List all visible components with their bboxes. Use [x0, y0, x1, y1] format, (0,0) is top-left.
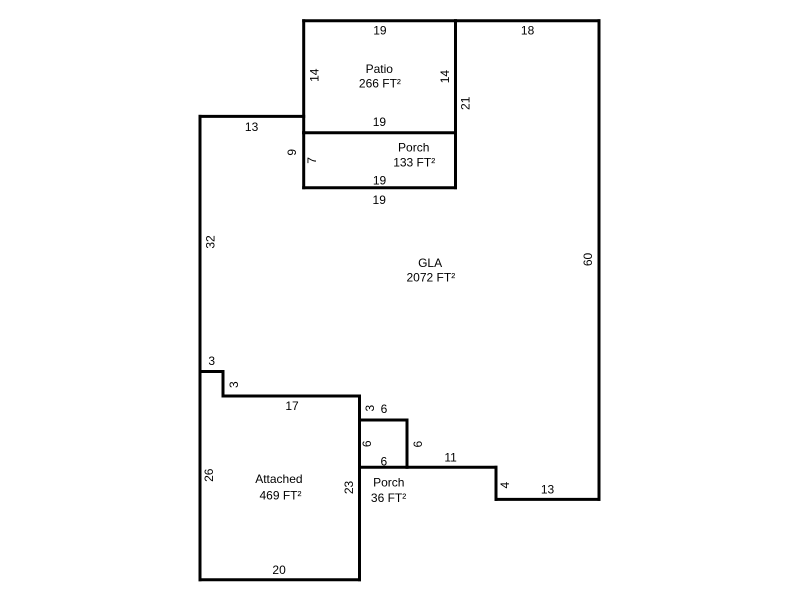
svg-text:21: 21: [458, 96, 472, 110]
svg-text:266 FT²: 266 FT²: [359, 77, 401, 91]
svg-text:18: 18: [521, 24, 535, 38]
svg-text:19: 19: [373, 193, 387, 207]
svg-text:14: 14: [438, 70, 452, 84]
svg-text:14: 14: [308, 68, 322, 82]
svg-text:13: 13: [245, 120, 259, 134]
svg-text:6: 6: [411, 441, 425, 448]
svg-text:Porch: Porch: [373, 475, 404, 489]
svg-text:13: 13: [541, 483, 555, 497]
svg-text:19: 19: [373, 23, 387, 37]
svg-text:7: 7: [305, 157, 319, 164]
svg-text:32: 32: [203, 235, 217, 249]
svg-text:GLA: GLA: [418, 256, 442, 270]
svg-text:Porch: Porch: [398, 140, 429, 154]
svg-text:17: 17: [285, 399, 299, 413]
svg-text:Attached: Attached: [255, 472, 302, 486]
svg-text:3: 3: [227, 381, 241, 388]
svg-text:9: 9: [285, 149, 299, 156]
svg-text:3: 3: [208, 354, 215, 368]
svg-text:6: 6: [381, 402, 388, 416]
svg-text:19: 19: [373, 115, 387, 129]
svg-text:36 FT²: 36 FT²: [371, 491, 406, 505]
svg-text:26: 26: [202, 468, 216, 482]
svg-text:20: 20: [272, 563, 286, 577]
svg-text:23: 23: [342, 481, 356, 495]
svg-text:133 FT²: 133 FT²: [393, 155, 435, 169]
svg-text:Patio: Patio: [366, 62, 394, 76]
svg-text:4: 4: [498, 481, 512, 488]
svg-text:60: 60: [581, 253, 595, 267]
svg-text:11: 11: [444, 450, 457, 464]
svg-text:6: 6: [360, 440, 374, 447]
svg-text:469 FT²: 469 FT²: [259, 488, 301, 502]
svg-text:3: 3: [363, 404, 377, 411]
svg-text:2072 FT²: 2072 FT²: [407, 270, 456, 284]
svg-text:6: 6: [381, 454, 388, 468]
svg-text:19: 19: [373, 174, 387, 188]
